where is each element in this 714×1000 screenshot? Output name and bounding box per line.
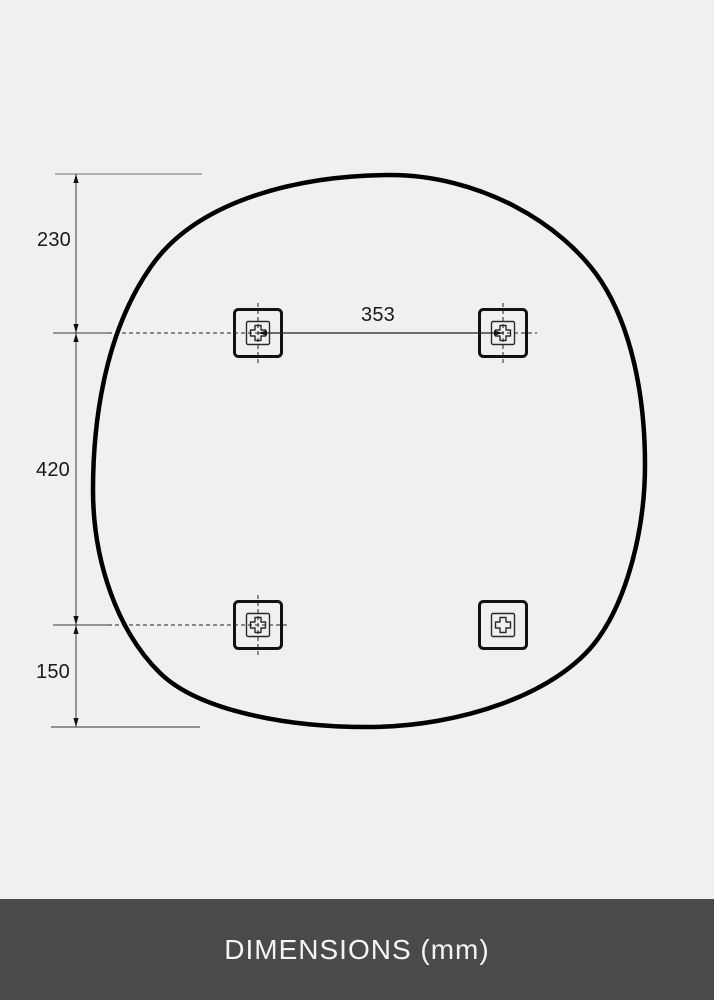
diagram-svg <box>0 0 714 899</box>
dimension-label-230: 230 <box>28 228 80 252</box>
dimension-label-353: 353 <box>352 303 404 327</box>
footer-banner: DIMENSIONS (mm) <box>0 899 714 1000</box>
footer-title: DIMENSIONS (mm) <box>224 934 489 966</box>
mount-bracket-bottom-right <box>480 602 527 649</box>
dimension-drawing-page: 230 420 150 353 DIMENSIONS (mm) <box>0 0 714 1000</box>
dimension-label-150: 150 <box>27 660 79 684</box>
dimension-label-420: 420 <box>27 458 79 482</box>
mirror-outline-path <box>93 175 645 727</box>
